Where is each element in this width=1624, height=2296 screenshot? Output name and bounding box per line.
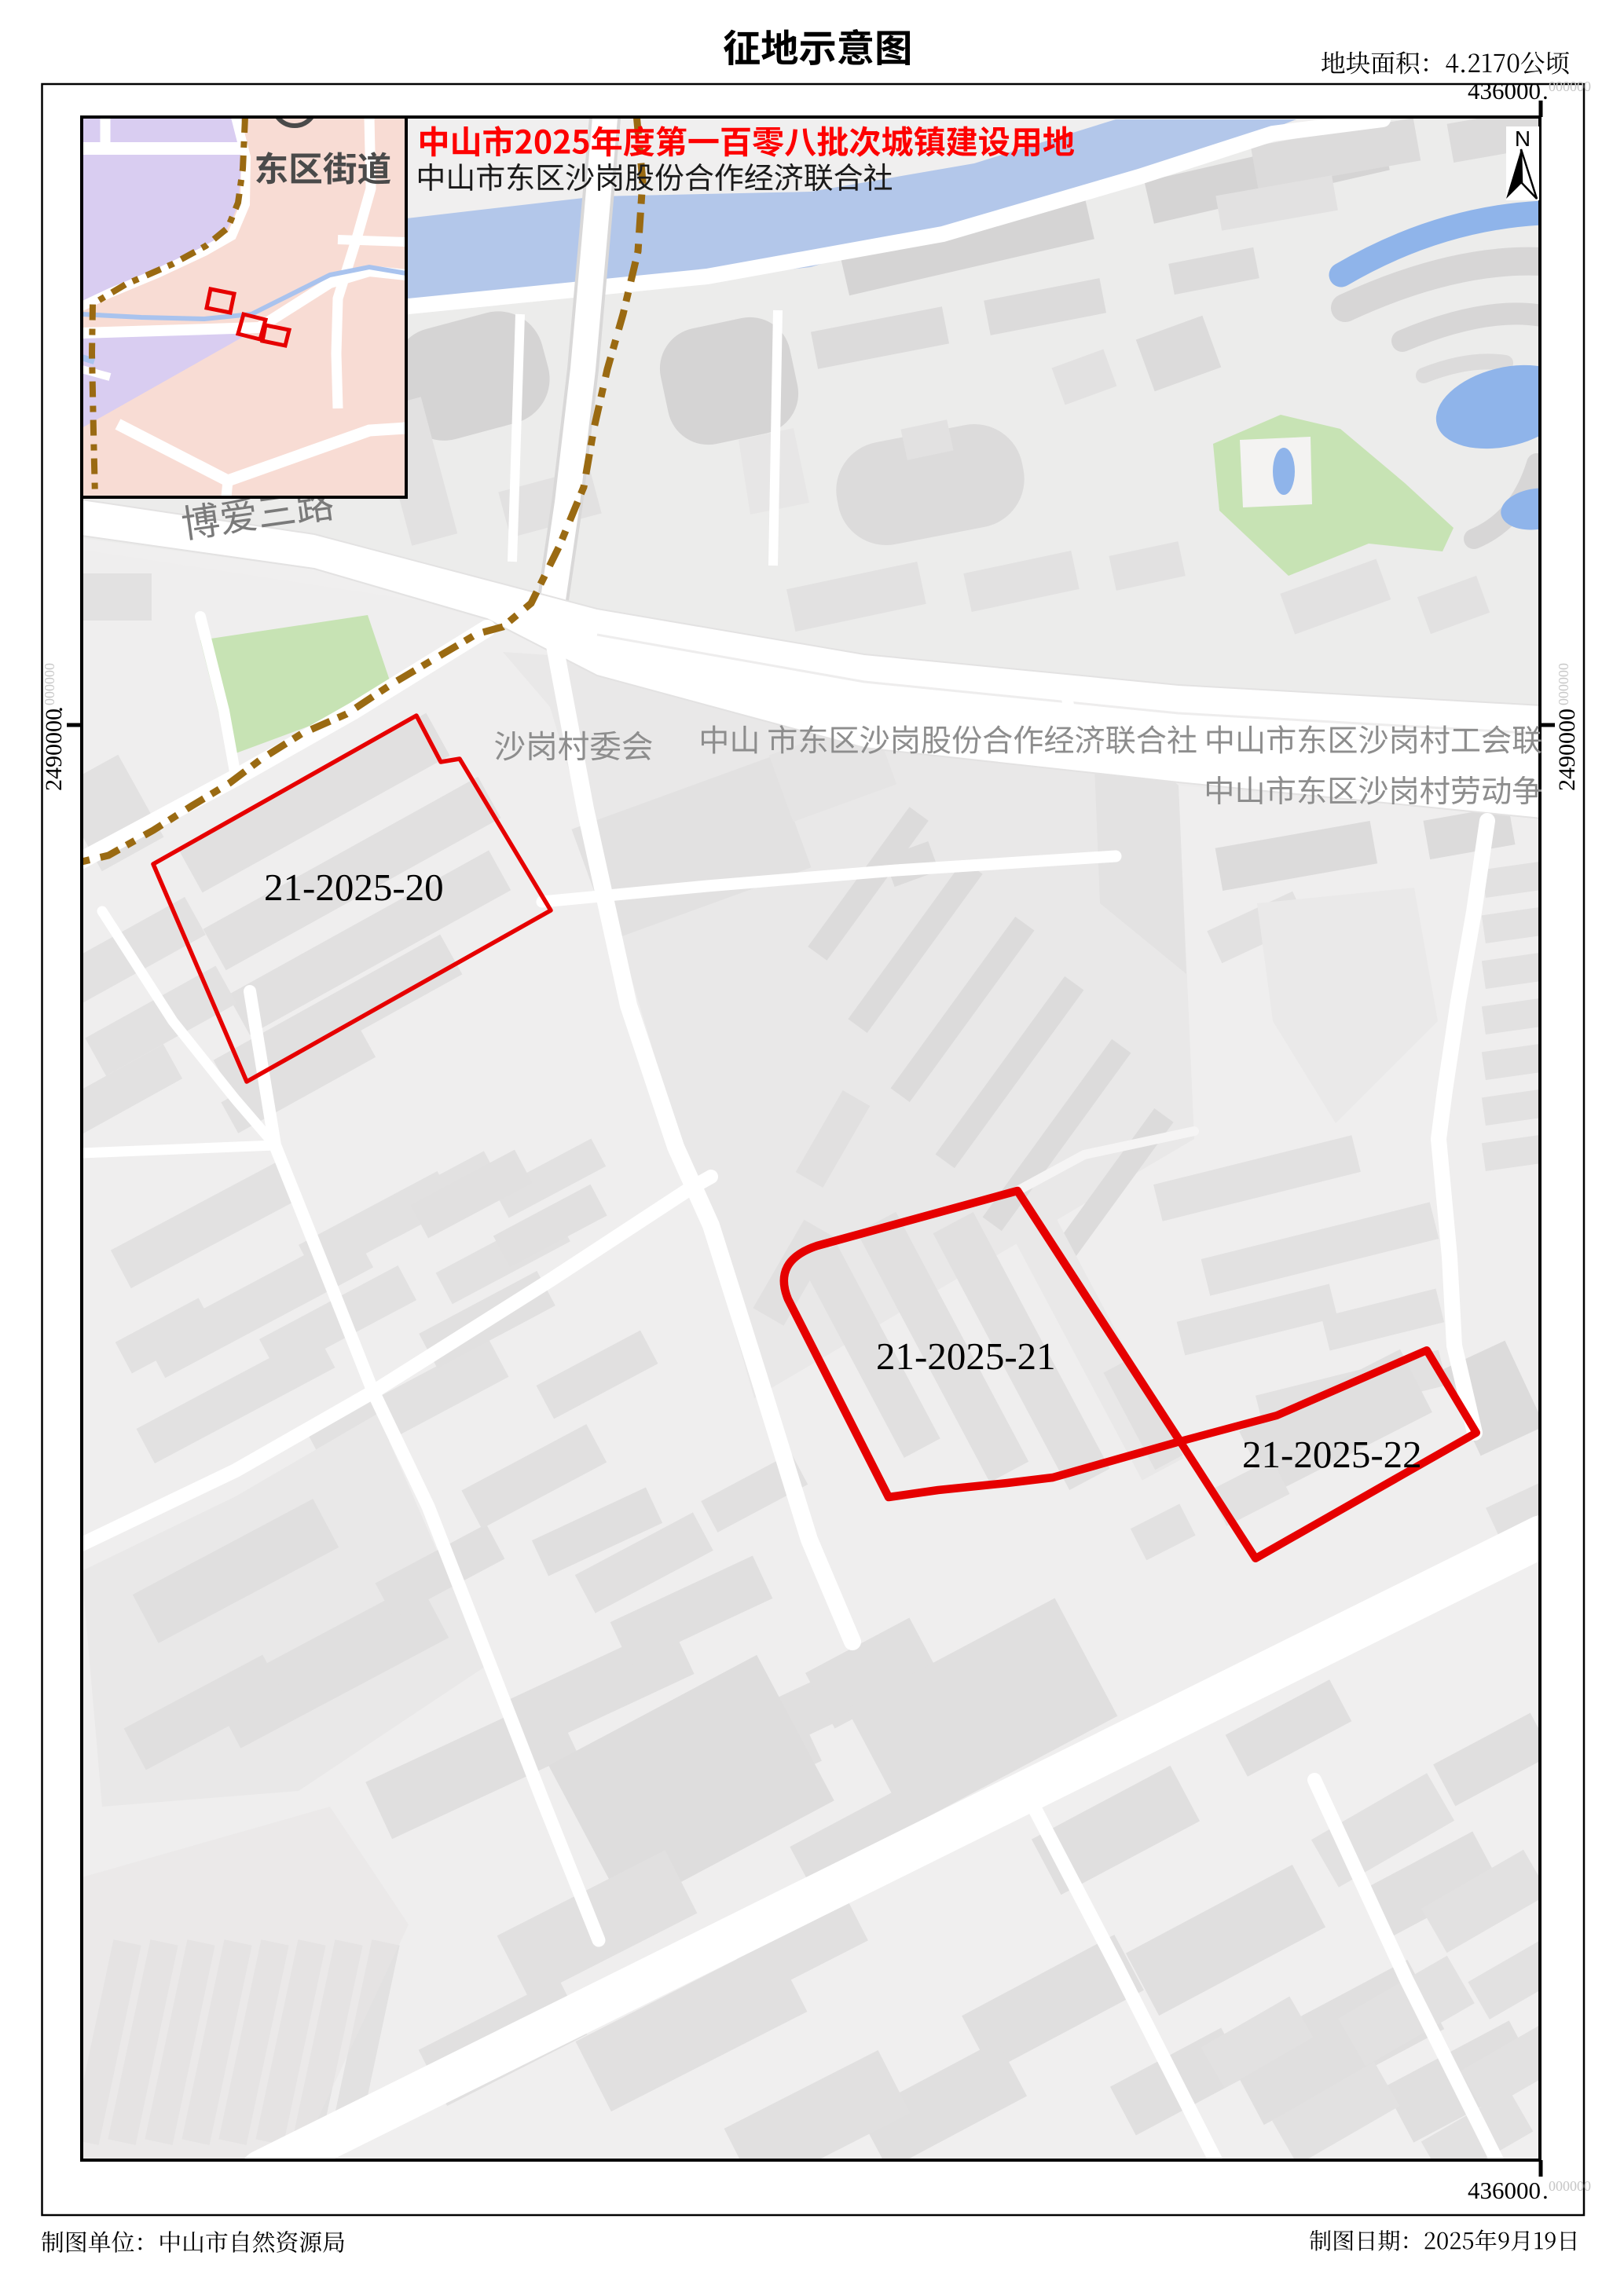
svg-text:N: N <box>1515 126 1531 151</box>
svg-text:21-2025-21: 21-2025-21 <box>876 1335 1056 1378</box>
svg-text:21-2025-22: 21-2025-22 <box>1242 1433 1422 1476</box>
svg-text:000000: 000000 <box>1556 663 1571 705</box>
svg-text:000000: 000000 <box>1549 2178 1591 2194</box>
svg-text:2490000: 2490000 <box>1554 709 1580 791</box>
svg-text:.: . <box>1542 77 1549 104</box>
svg-text:000000: 000000 <box>42 663 57 705</box>
svg-text:2490000: 2490000 <box>41 709 67 791</box>
svg-text:436000: 436000 <box>1468 2177 1541 2204</box>
svg-text:.: . <box>40 706 68 712</box>
svg-text:.: . <box>1542 2177 1549 2204</box>
svg-text:000000: 000000 <box>1549 79 1591 94</box>
svg-text:21-2025-20: 21-2025-20 <box>264 866 444 909</box>
svg-text:436000: 436000 <box>1468 77 1541 104</box>
